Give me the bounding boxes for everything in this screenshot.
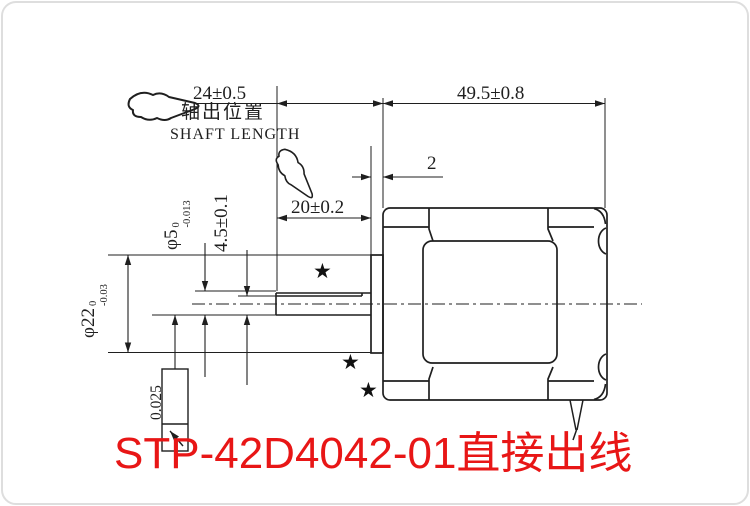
product-title: STP-42D4042-01直接出线: [114, 431, 632, 477]
dim-boss-diameter: φ220-0.03: [78, 284, 100, 338]
shaft-dia-tol-upper: 0: [171, 200, 182, 227]
boss-dia-tol-lower: -0.03: [99, 284, 110, 306]
engineering-drawing: 24±0.5 轴出位置 SHAFT LENGTH 49.5±0.8 2 20±0…: [0, 0, 750, 506]
boss-dia-tol-upper: 0: [88, 284, 99, 306]
star-mark: ★: [341, 351, 360, 373]
dimension-lines: [128, 104, 605, 386]
dim-body-length: 49.5±0.8: [457, 84, 524, 104]
shaft-dia-tol-lower: -0.013: [182, 200, 193, 227]
stator-stack: [423, 241, 557, 363]
star-mark: ★: [359, 379, 378, 401]
dim-shaft-diameter: φ50-0.013: [161, 200, 183, 250]
runout-tolerance-value: 0.025: [148, 385, 166, 420]
pointing-hand-icon: [270, 145, 320, 203]
dim-flat-height: 4.5±0.1: [211, 194, 233, 252]
shaft-dia-value: φ5: [161, 230, 182, 250]
star-mark: ★: [313, 260, 332, 282]
dim-flat-length: 20±0.2: [291, 198, 344, 218]
dim-shaft-length: 24±0.5: [193, 84, 246, 104]
dim-boss-protrusion: 2: [427, 154, 437, 174]
label-shaft-length-en: SHAFT LENGTH: [170, 125, 300, 145]
boss-dia-value: φ22: [78, 308, 99, 338]
label-shaft-position-cn: 轴出位置: [181, 103, 265, 123]
